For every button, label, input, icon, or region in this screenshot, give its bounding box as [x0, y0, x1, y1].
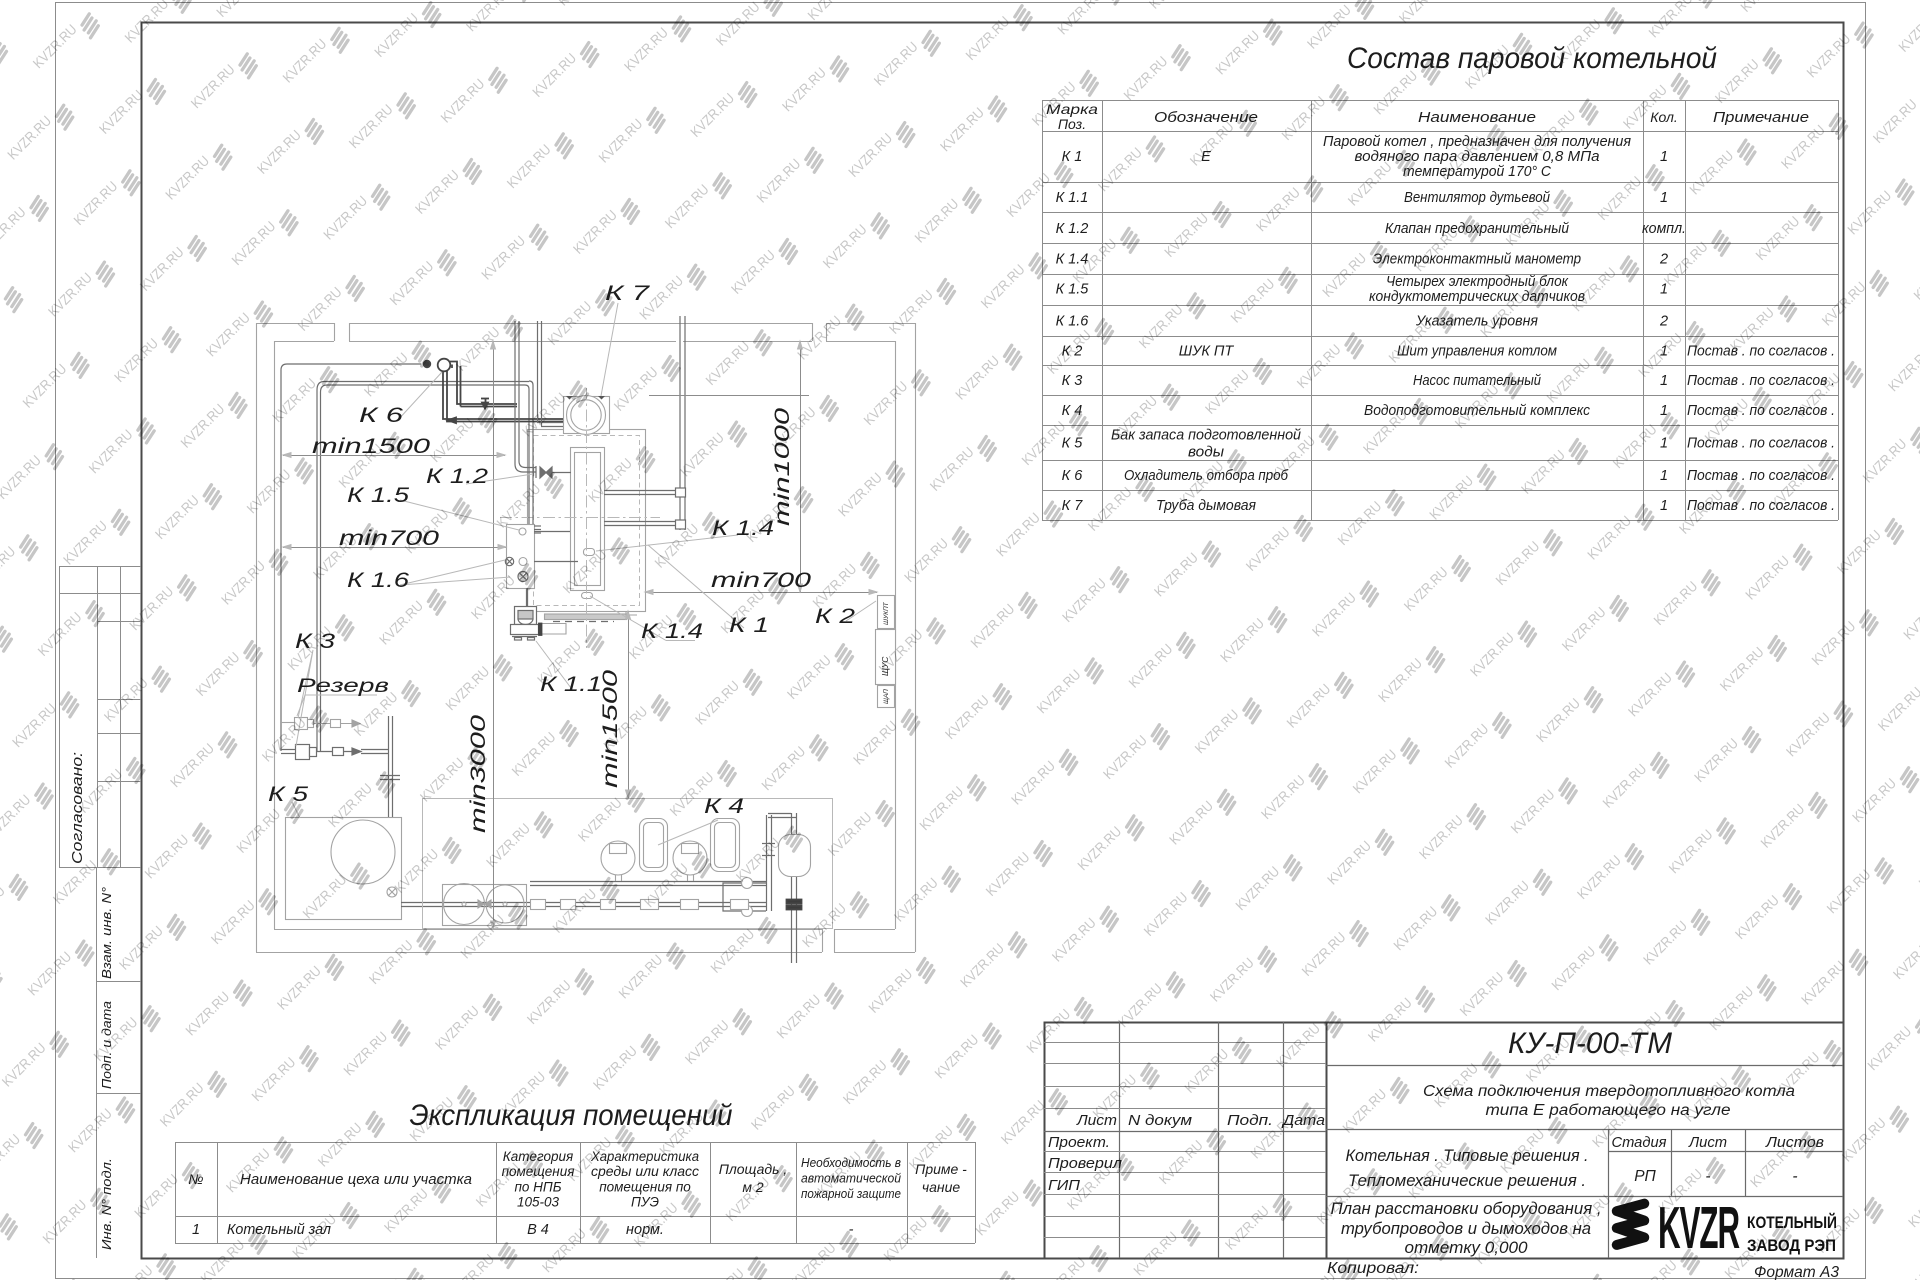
svg-text:min3000: min3000 [467, 715, 490, 833]
svg-text:К 6: К 6 [359, 404, 403, 427]
svg-text:Кол.: Кол. [1650, 109, 1678, 125]
svg-text:Состав паровой котельной: Состав паровой котельной [1347, 42, 1717, 75]
svg-text:N докум: N докум [1128, 1112, 1192, 1129]
svg-text:Проект.: Проект. [1048, 1134, 1110, 1151]
svg-text:К 1.6: К 1.6 [1056, 314, 1090, 330]
svg-text:трубопроводов и дымоходов на: трубопроводов и дымоходов на [1341, 1219, 1591, 1238]
svg-text:1: 1 [192, 1222, 200, 1238]
svg-text:ПУЭ: ПУЭ [631, 1195, 659, 1210]
svg-text:ШУК ПТ: ШУК ПТ [1179, 344, 1235, 360]
svg-text:Постав . по согласов .: Постав . по согласов . [1687, 344, 1835, 360]
svg-text:Формат А3: Формат А3 [1754, 1264, 1839, 1280]
svg-text:1: 1 [1660, 149, 1668, 165]
svg-text:Электроконтактный манометр: Электроконтактный манометр [1373, 252, 1581, 268]
svg-text:1: 1 [1660, 436, 1668, 452]
svg-text:КОТЕЛЬНЫЙ: КОТЕЛЬНЫЙ [1747, 1213, 1837, 1232]
svg-text:Четырех электродный блок: Четырех электродный блок [1386, 274, 1569, 290]
svg-text:К 1.2: К 1.2 [1056, 221, 1089, 237]
svg-text:К 5: К 5 [1062, 436, 1084, 452]
svg-text:Взам. инв. N°: Взам. инв. N° [100, 887, 114, 979]
svg-text:К 6: К 6 [1062, 468, 1084, 484]
svg-text:1: 1 [1660, 190, 1668, 206]
svg-text:по НПБ: по НПБ [514, 1179, 561, 1194]
svg-text:2: 2 [1659, 252, 1668, 268]
svg-text:помещения по: помещения по [599, 1179, 691, 1194]
svg-text:Подп.: Подп. [1227, 1112, 1273, 1129]
svg-text:К 7: К 7 [1062, 498, 1084, 514]
svg-text:К 1: К 1 [1062, 149, 1083, 165]
svg-text:чание: чание [922, 1179, 961, 1195]
svg-text:среды или класс: среды или класс [591, 1164, 699, 1179]
svg-text:В 4: В 4 [527, 1222, 549, 1238]
svg-text:К 1.5: К 1.5 [347, 484, 409, 507]
svg-text:Поз.: Поз. [1058, 116, 1086, 132]
svg-text:температурой 170° С: температурой 170° С [1403, 164, 1551, 180]
svg-text:компл.: компл. [1642, 221, 1686, 237]
svg-text:Шит управления котлом: Шит управления котлом [1397, 344, 1557, 360]
svg-text:ШУКПТ: ШУКПТ [883, 601, 890, 625]
svg-text:105-03: 105-03 [517, 1195, 560, 1210]
svg-text:Проверил: Проверил [1048, 1155, 1123, 1172]
svg-text:К 3: К 3 [1062, 373, 1083, 389]
svg-text:Постав . по согласов .: Постав . по согласов . [1687, 373, 1835, 389]
svg-text:К 1.5: К 1.5 [1056, 282, 1090, 298]
svg-text:План расстановки оборудования: План расстановки оборудования , [1331, 1199, 1602, 1218]
svg-text:РП: РП [1634, 1168, 1656, 1185]
svg-text:ЩАП: ЩАП [883, 689, 890, 704]
svg-text:1: 1 [1660, 373, 1668, 389]
svg-text:Резерв: Резерв [297, 676, 389, 697]
svg-text:Листов: Листов [1765, 1134, 1824, 1151]
svg-text:воды: воды [1188, 445, 1224, 461]
svg-text:К 1.1: К 1.1 [1056, 190, 1089, 206]
svg-text:Примечание: Примечание [1713, 110, 1809, 126]
svg-text:Бак запаса подготовленной: Бак запаса подготовленной [1111, 428, 1301, 444]
svg-text:К 1.2: К 1.2 [426, 465, 488, 488]
svg-text:Вентилятор дутьевой: Вентилятор дутьевой [1404, 190, 1550, 206]
svg-text:1: 1 [1660, 498, 1668, 514]
svg-text:1: 1 [1660, 468, 1668, 484]
svg-text:Лист: Лист [1688, 1134, 1727, 1151]
svg-text:К 4: К 4 [704, 795, 744, 818]
svg-text:2: 2 [1659, 314, 1668, 330]
svg-text:Стадия: Стадия [1612, 1134, 1667, 1151]
svg-text:К 1.6: К 1.6 [347, 569, 409, 592]
svg-text:Наименование: Наименование [1418, 110, 1536, 126]
svg-text:К 5: К 5 [268, 783, 308, 806]
svg-text:min700: min700 [711, 569, 811, 592]
svg-text:кондуктометрических датчиков: кондуктометрических датчиков [1369, 289, 1585, 305]
svg-text:-: - [1792, 1168, 1797, 1185]
svg-text:Труба дымовая: Труба дымовая [1156, 498, 1256, 514]
svg-text:Тепломеханические решения .: Тепломеханические решения . [1348, 1171, 1586, 1190]
svg-text:Насос питательный: Насос питательный [1413, 373, 1541, 389]
